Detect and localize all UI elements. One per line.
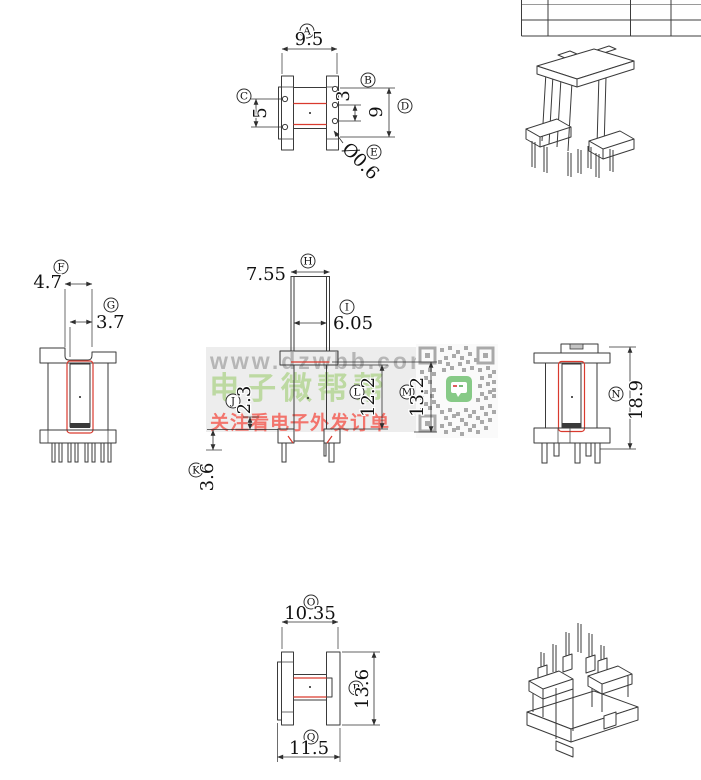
- dim-G: G 3.7: [70, 298, 125, 357]
- qr-finder-dot: [425, 421, 430, 426]
- qr-finder-dot: [483, 353, 488, 358]
- pin: [282, 443, 286, 462]
- pin-hole: [332, 118, 337, 123]
- dim-letter: C: [240, 91, 248, 103]
- dim-letter: I: [345, 302, 349, 314]
- view-bottom: [278, 652, 341, 725]
- bottom-flange: [40, 430, 116, 443]
- center-mark: [309, 686, 311, 688]
- bottom-flange: [534, 428, 610, 443]
- view-iso-top: [526, 46, 634, 178]
- chat-bubble-icon: [451, 382, 467, 393]
- dim-value: 11.5: [289, 738, 329, 759]
- flange-notch: [570, 344, 583, 349]
- engineering-drawing: www.dzwbb.com 电子微帮帮 关注看电子外发订单: [0, 0, 701, 780]
- flange-inner-step: [327, 678, 333, 697]
- right-flange: [327, 652, 341, 725]
- dim-value: 10.35: [284, 603, 336, 624]
- dim-N: N 18.9: [600, 347, 647, 449]
- dim-F: F 4.7: [33, 260, 92, 347]
- dim-value: 4.7: [33, 272, 62, 293]
- dim-letter: D: [401, 101, 409, 113]
- dim-value: 3: [333, 90, 354, 101]
- dim-value: 5: [250, 107, 271, 118]
- title-block-table: [522, 0, 701, 36]
- qr-icon-text-mark: [453, 385, 457, 387]
- qr-finder-dot: [425, 353, 430, 358]
- dim-value: 9: [366, 106, 387, 117]
- pin: [59, 443, 62, 462]
- pin: [108, 443, 111, 462]
- window-base: [562, 423, 581, 428]
- pin: [101, 443, 104, 462]
- center-mark: [307, 397, 309, 399]
- center-mark: [79, 396, 81, 398]
- view-front-left: [40, 348, 116, 462]
- pin-chamfer-marks: [288, 436, 332, 443]
- dim-A: A 9.5: [282, 24, 337, 74]
- dim-value: 3.6: [197, 463, 218, 492]
- tube: [291, 276, 330, 351]
- dim-value: 7.55: [246, 264, 286, 285]
- dim-letter: H: [303, 256, 312, 268]
- dim-letter: G: [107, 300, 115, 312]
- pin-hole: [282, 96, 287, 101]
- pin: [595, 443, 600, 463]
- pin-hole: [332, 102, 337, 107]
- qr-code: [416, 344, 498, 438]
- dim-letter: B: [364, 75, 372, 87]
- dim-value: 18.9: [626, 380, 647, 420]
- pin: [329, 443, 334, 462]
- qr-center-icon: [446, 376, 472, 402]
- pin: [85, 443, 88, 462]
- dim-value: 9.5: [295, 29, 324, 50]
- pins: [541, 623, 604, 680]
- pin: [92, 443, 95, 462]
- pins: [52, 443, 111, 462]
- dim-value: 13.6: [352, 669, 373, 709]
- dim-H: H 7.55: [246, 254, 330, 285]
- pin-collar: [563, 654, 572, 672]
- dim-value: 13.2: [407, 377, 428, 417]
- dim-O: O 10.35: [282, 595, 338, 649]
- view-front-right: [534, 344, 610, 463]
- dim-Q: Q 11.5: [278, 723, 341, 762]
- window-base: [70, 423, 90, 428]
- winding-window: [562, 364, 581, 428]
- dim-C: C 5: [237, 89, 281, 127]
- pins: [568, 146, 591, 177]
- pin: [324, 443, 326, 456]
- dim-letter: N: [611, 389, 620, 401]
- dim-I: I 6.05: [294, 300, 373, 334]
- dim-K: K 3.6: [189, 430, 222, 491]
- dim-E: E Ø0.6: [334, 131, 383, 184]
- base-foot: [556, 741, 573, 757]
- dim-P: P 13.6: [342, 652, 380, 725]
- center-mark: [309, 112, 311, 114]
- left-flange: [282, 652, 294, 725]
- pin: [575, 443, 580, 463]
- view-iso-bottom: [527, 623, 638, 757]
- pin: [542, 443, 547, 463]
- view-top: [279, 76, 339, 150]
- dim-value: 3.7: [96, 312, 125, 333]
- winding-window: [70, 364, 90, 427]
- pin-hole: [282, 124, 287, 129]
- pin: [68, 443, 71, 462]
- pin-collar: [586, 655, 595, 673]
- dim-value: 2.3: [234, 386, 255, 415]
- pin: [52, 443, 55, 462]
- left-flange-tab: [279, 87, 282, 139]
- pin: [75, 443, 78, 462]
- left-flange-tab: [278, 662, 282, 720]
- pins: [542, 443, 600, 463]
- dim-value: 6.05: [333, 313, 373, 334]
- pin: [586, 443, 591, 456]
- qr-icon-text-mark: [459, 385, 463, 387]
- center-mark: [571, 396, 573, 398]
- pin: [554, 443, 559, 456]
- drawing-page: www.dzwbb.com 电子微帮帮 关注看电子外发订单: [0, 0, 701, 780]
- dim-value: 12.2: [358, 377, 379, 417]
